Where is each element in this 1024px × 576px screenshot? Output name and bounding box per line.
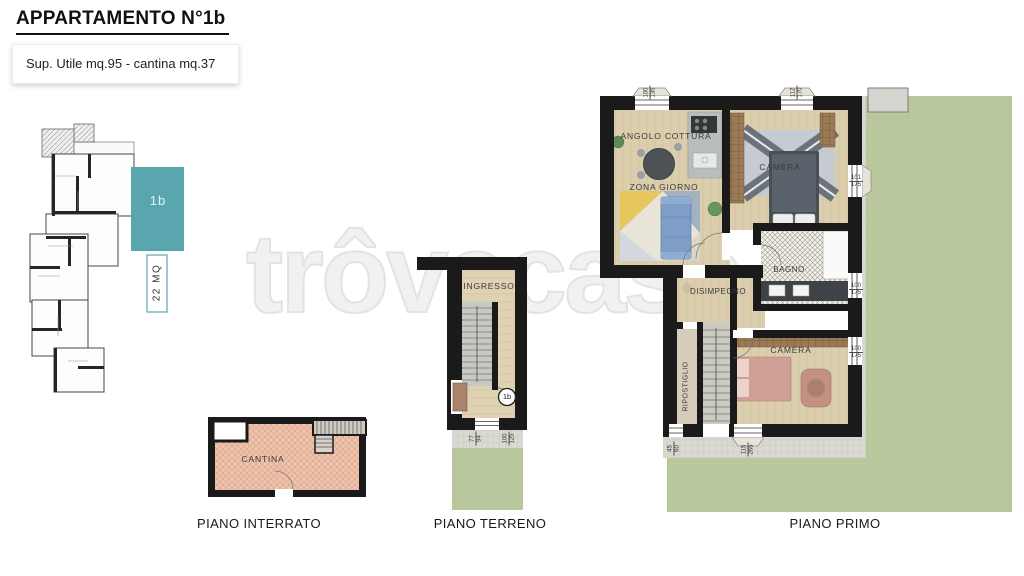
key-plan-building-outline	[30, 124, 134, 392]
surface-info-box: Sup. Utile mq.95 - cantina mq.37	[12, 44, 239, 84]
room-label-cantina: CANTINA	[213, 454, 313, 464]
primo-garden-bottom	[667, 458, 866, 512]
plant-icon	[708, 202, 722, 216]
primo-garden-right	[866, 96, 1012, 512]
primo-balcony	[868, 88, 908, 112]
room-label-bagno: BAGNO	[729, 265, 849, 274]
dim-terreno-0: 77 94	[470, 432, 483, 446]
room-label-disimpegno: DISIMPEGNO	[658, 287, 778, 296]
dim-primo-0: 100135	[644, 86, 657, 100]
terreno-unit-badge: 1b	[499, 389, 515, 405]
terreno-window	[475, 418, 499, 430]
room-label-angolo-cottura: ANGOLO COTTURA	[596, 131, 736, 141]
interrato-annex-room	[213, 421, 247, 441]
room-label-ripostiglio: RIPOSTIGLIO	[683, 337, 690, 437]
key-plan-unit-label: 1b	[128, 193, 188, 208]
dim-primo-3: 100175	[849, 283, 863, 296]
dim-primo-1: 112170	[791, 86, 804, 100]
disimpegno-floor	[670, 273, 765, 328]
key-plan	[28, 116, 193, 396]
terreno-garden	[452, 448, 523, 510]
floorplan-sheet: trôvacasa APPARTAMENTO N°1b Sup. Utile m…	[0, 0, 1024, 576]
room-label-camera2: CAMERA	[731, 345, 851, 355]
floor-label-primo: PIANO PRIMO	[765, 516, 905, 531]
floor-label-interrato: PIANO INTERRATO	[189, 516, 329, 531]
room-label-ingresso: INGRESSO	[439, 281, 539, 291]
dim-primo-4: 100175	[849, 346, 863, 359]
primo-staircase	[700, 322, 732, 426]
key-plan-area-label: 22 MQ	[152, 243, 163, 323]
dim-terreno-1: 100 125	[503, 432, 516, 446]
dim-primo-2: 101175	[849, 175, 863, 188]
dim-primo-5: 4560	[668, 442, 681, 456]
floor-label-terreno: PIANO TERRENO	[420, 516, 560, 531]
key-plan-unit-highlight	[131, 167, 184, 251]
room-label-zona-giorno: ZONA GIORNO	[594, 182, 734, 192]
page-title: APPARTAMENTO N°1b	[16, 8, 229, 35]
room-label-camera1: CAMERA	[720, 162, 840, 172]
terreno-staircase	[462, 302, 492, 386]
terreno-desk	[451, 380, 467, 414]
plan-piano-primo	[595, 85, 1015, 515]
sofa	[661, 197, 691, 259]
dim-primo-6: 115265	[742, 443, 755, 457]
primo-paving-bottom	[663, 437, 866, 458]
kitchen-block	[688, 112, 722, 178]
wardrobe-camera1	[820, 113, 835, 147]
